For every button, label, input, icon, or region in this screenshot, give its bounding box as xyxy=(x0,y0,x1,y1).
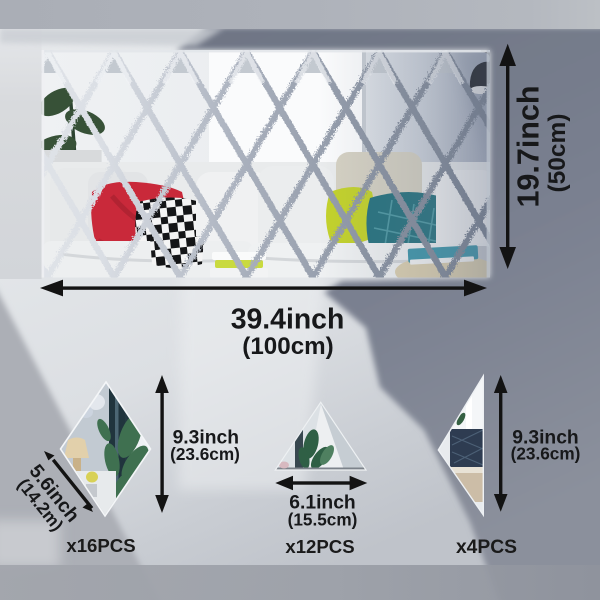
svg-text:(100cm): (100cm) xyxy=(242,333,333,360)
svg-text:(23.6cm): (23.6cm) xyxy=(170,444,240,464)
svg-text:19.7inch: 19.7inch xyxy=(512,85,546,207)
svg-text:x16PCS: x16PCS xyxy=(66,535,135,556)
svg-text:x12PCS: x12PCS xyxy=(285,536,354,557)
svg-text:(50cm): (50cm) xyxy=(544,114,571,193)
svg-text:(23.6cm): (23.6cm) xyxy=(511,444,581,464)
svg-text:39.4inch: 39.4inch xyxy=(231,304,345,336)
svg-text:(15.5cm): (15.5cm) xyxy=(288,510,358,530)
svg-text:x4PCS: x4PCS xyxy=(456,537,517,558)
